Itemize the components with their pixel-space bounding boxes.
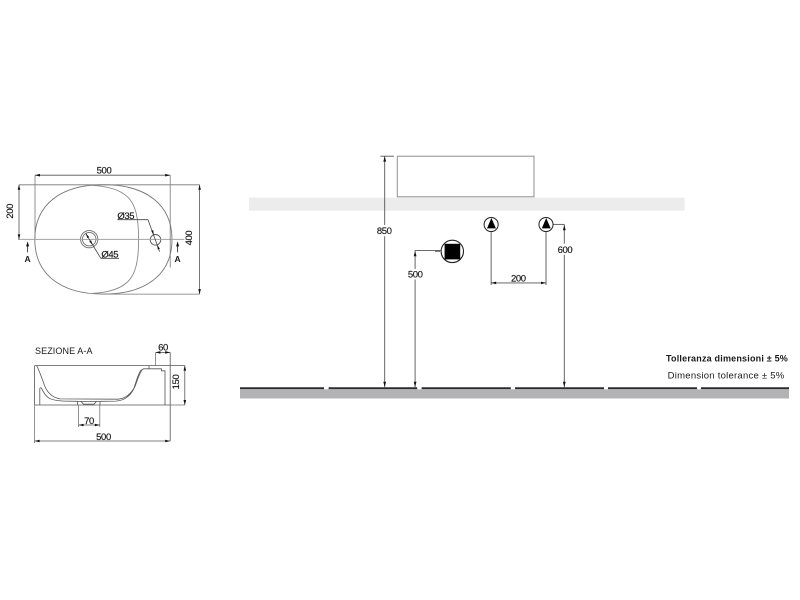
svg-text:SEZIONE A-A: SEZIONE A-A xyxy=(35,346,93,356)
svg-text:400: 400 xyxy=(184,231,195,246)
svg-text:A: A xyxy=(175,254,181,264)
svg-text:500: 500 xyxy=(96,432,111,443)
svg-text:500: 500 xyxy=(408,269,423,280)
svg-text:Tolleranza dimensioni ± 5%: Tolleranza dimensioni ± 5% xyxy=(666,354,788,364)
svg-text:A: A xyxy=(25,254,31,264)
svg-text:70: 70 xyxy=(84,416,94,427)
svg-text:Dimension tolerance ± 5%: Dimension tolerance ± 5% xyxy=(668,370,785,381)
svg-text:Ø35: Ø35 xyxy=(117,211,134,222)
svg-text:200: 200 xyxy=(511,274,526,285)
svg-text:60: 60 xyxy=(158,343,168,354)
svg-text:150: 150 xyxy=(171,375,182,390)
svg-text:850: 850 xyxy=(377,226,392,237)
svg-text:600: 600 xyxy=(558,245,573,256)
svg-text:Ø45: Ø45 xyxy=(101,249,118,260)
svg-text:500: 500 xyxy=(97,165,112,176)
svg-text:200: 200 xyxy=(5,204,16,219)
